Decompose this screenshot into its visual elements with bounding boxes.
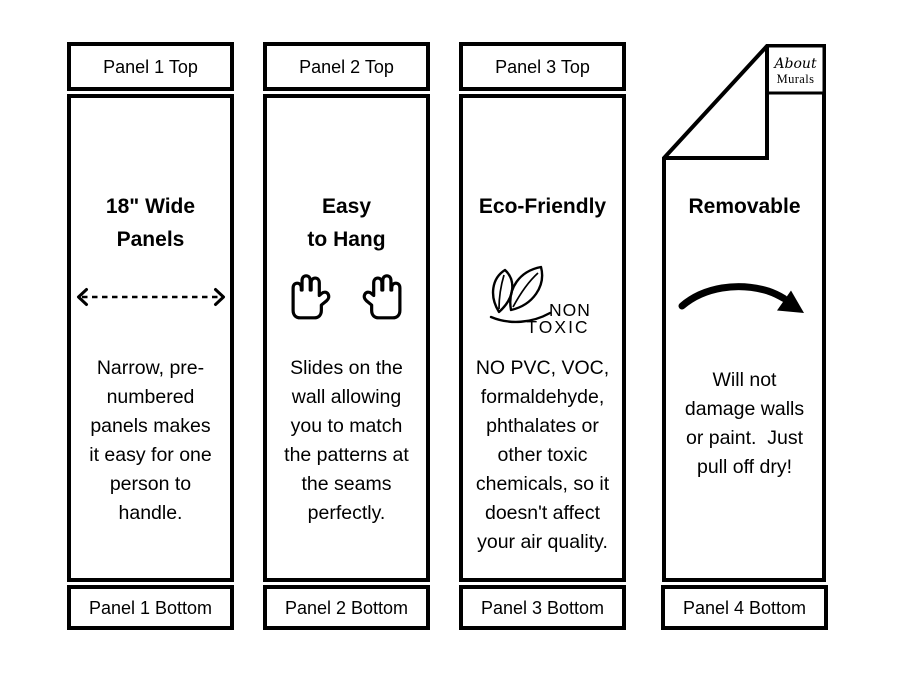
panel-2-bottom-box: Panel 2 Bottom [263,585,430,630]
panel-2: Panel 2 Top Easy to Hang Slides on the w… [263,42,430,630]
panel-1-top-box: Panel 1 Top [67,42,234,91]
panel-4-text: Will not damage walls or paint. Just pul… [667,366,822,482]
non-toxic-leaves-icon: NON TOXIC [484,258,602,336]
panel-2-text: Slides on the wall allowing you to match… [284,354,409,528]
aboutmurals-logo: About Murals [769,51,822,91]
panel-2-top-label: Panel 2 Top [299,58,394,76]
panel-1-title: 18" Wide Panels [106,190,195,256]
panel-4-bottom-box: Panel 4 Bottom [661,585,828,630]
panel-2-icon-slot [267,252,426,342]
panel-4-icon-slot [667,256,822,346]
panel-2-title: Easy to Hang [307,190,385,256]
panel-3-body: Eco-Friendly NON TOXIC NO PVC, VOC, form… [459,94,626,582]
panel-4-title: Removable [667,190,822,223]
raised-hand-left-icon [288,270,334,324]
panel-2-top-box: Panel 2 Top [263,42,430,91]
panel-3-title: Eco-Friendly [479,190,606,256]
logo-about-text: About [774,57,816,72]
panel-1: Panel 1 Top 18" Wide Panels Narrow, pre-… [67,42,234,630]
panel-3-text: NO PVC, VOC, formaldehyde, phthalates or… [476,354,609,557]
panel-4: About Murals Removable Will not damage w… [661,42,828,630]
panel-1-text: Narrow, pre- numbered panels makes it ea… [89,354,211,528]
panel-3-bottom-label: Panel 3 Bottom [481,599,604,617]
panel-2-bottom-label: Panel 2 Bottom [285,599,408,617]
width-double-arrow-icon [75,287,227,307]
panel-1-top-label: Panel 1 Top [103,58,198,76]
panel-2-body: Easy to Hang Slides on the wall allowing… [263,94,430,582]
panel-3-icon-slot: NON TOXIC [463,252,622,342]
panel-4-bottom-label: Panel 4 Bottom [683,599,806,617]
panel-3: Panel 3 Top Eco-Friendly NON TOXIC NO PV… [459,42,626,630]
panel-1-body: 18" Wide Panels Narrow, pre- numbered pa… [67,94,234,582]
panel-3-top-box: Panel 3 Top [459,42,626,91]
curved-arrow-icon [676,278,814,324]
panel-1-icon-slot [71,252,230,342]
logo-murals-text: Murals [777,72,815,86]
panel-1-bottom-box: Panel 1 Bottom [67,585,234,630]
non-toxic-text-line2: TOXIC [526,317,589,336]
panel-3-top-label: Panel 3 Top [495,58,590,76]
panel-1-bottom-label: Panel 1 Bottom [89,599,212,617]
panel-3-bottom-box: Panel 3 Bottom [459,585,626,630]
raised-hand-right-icon [359,270,405,324]
